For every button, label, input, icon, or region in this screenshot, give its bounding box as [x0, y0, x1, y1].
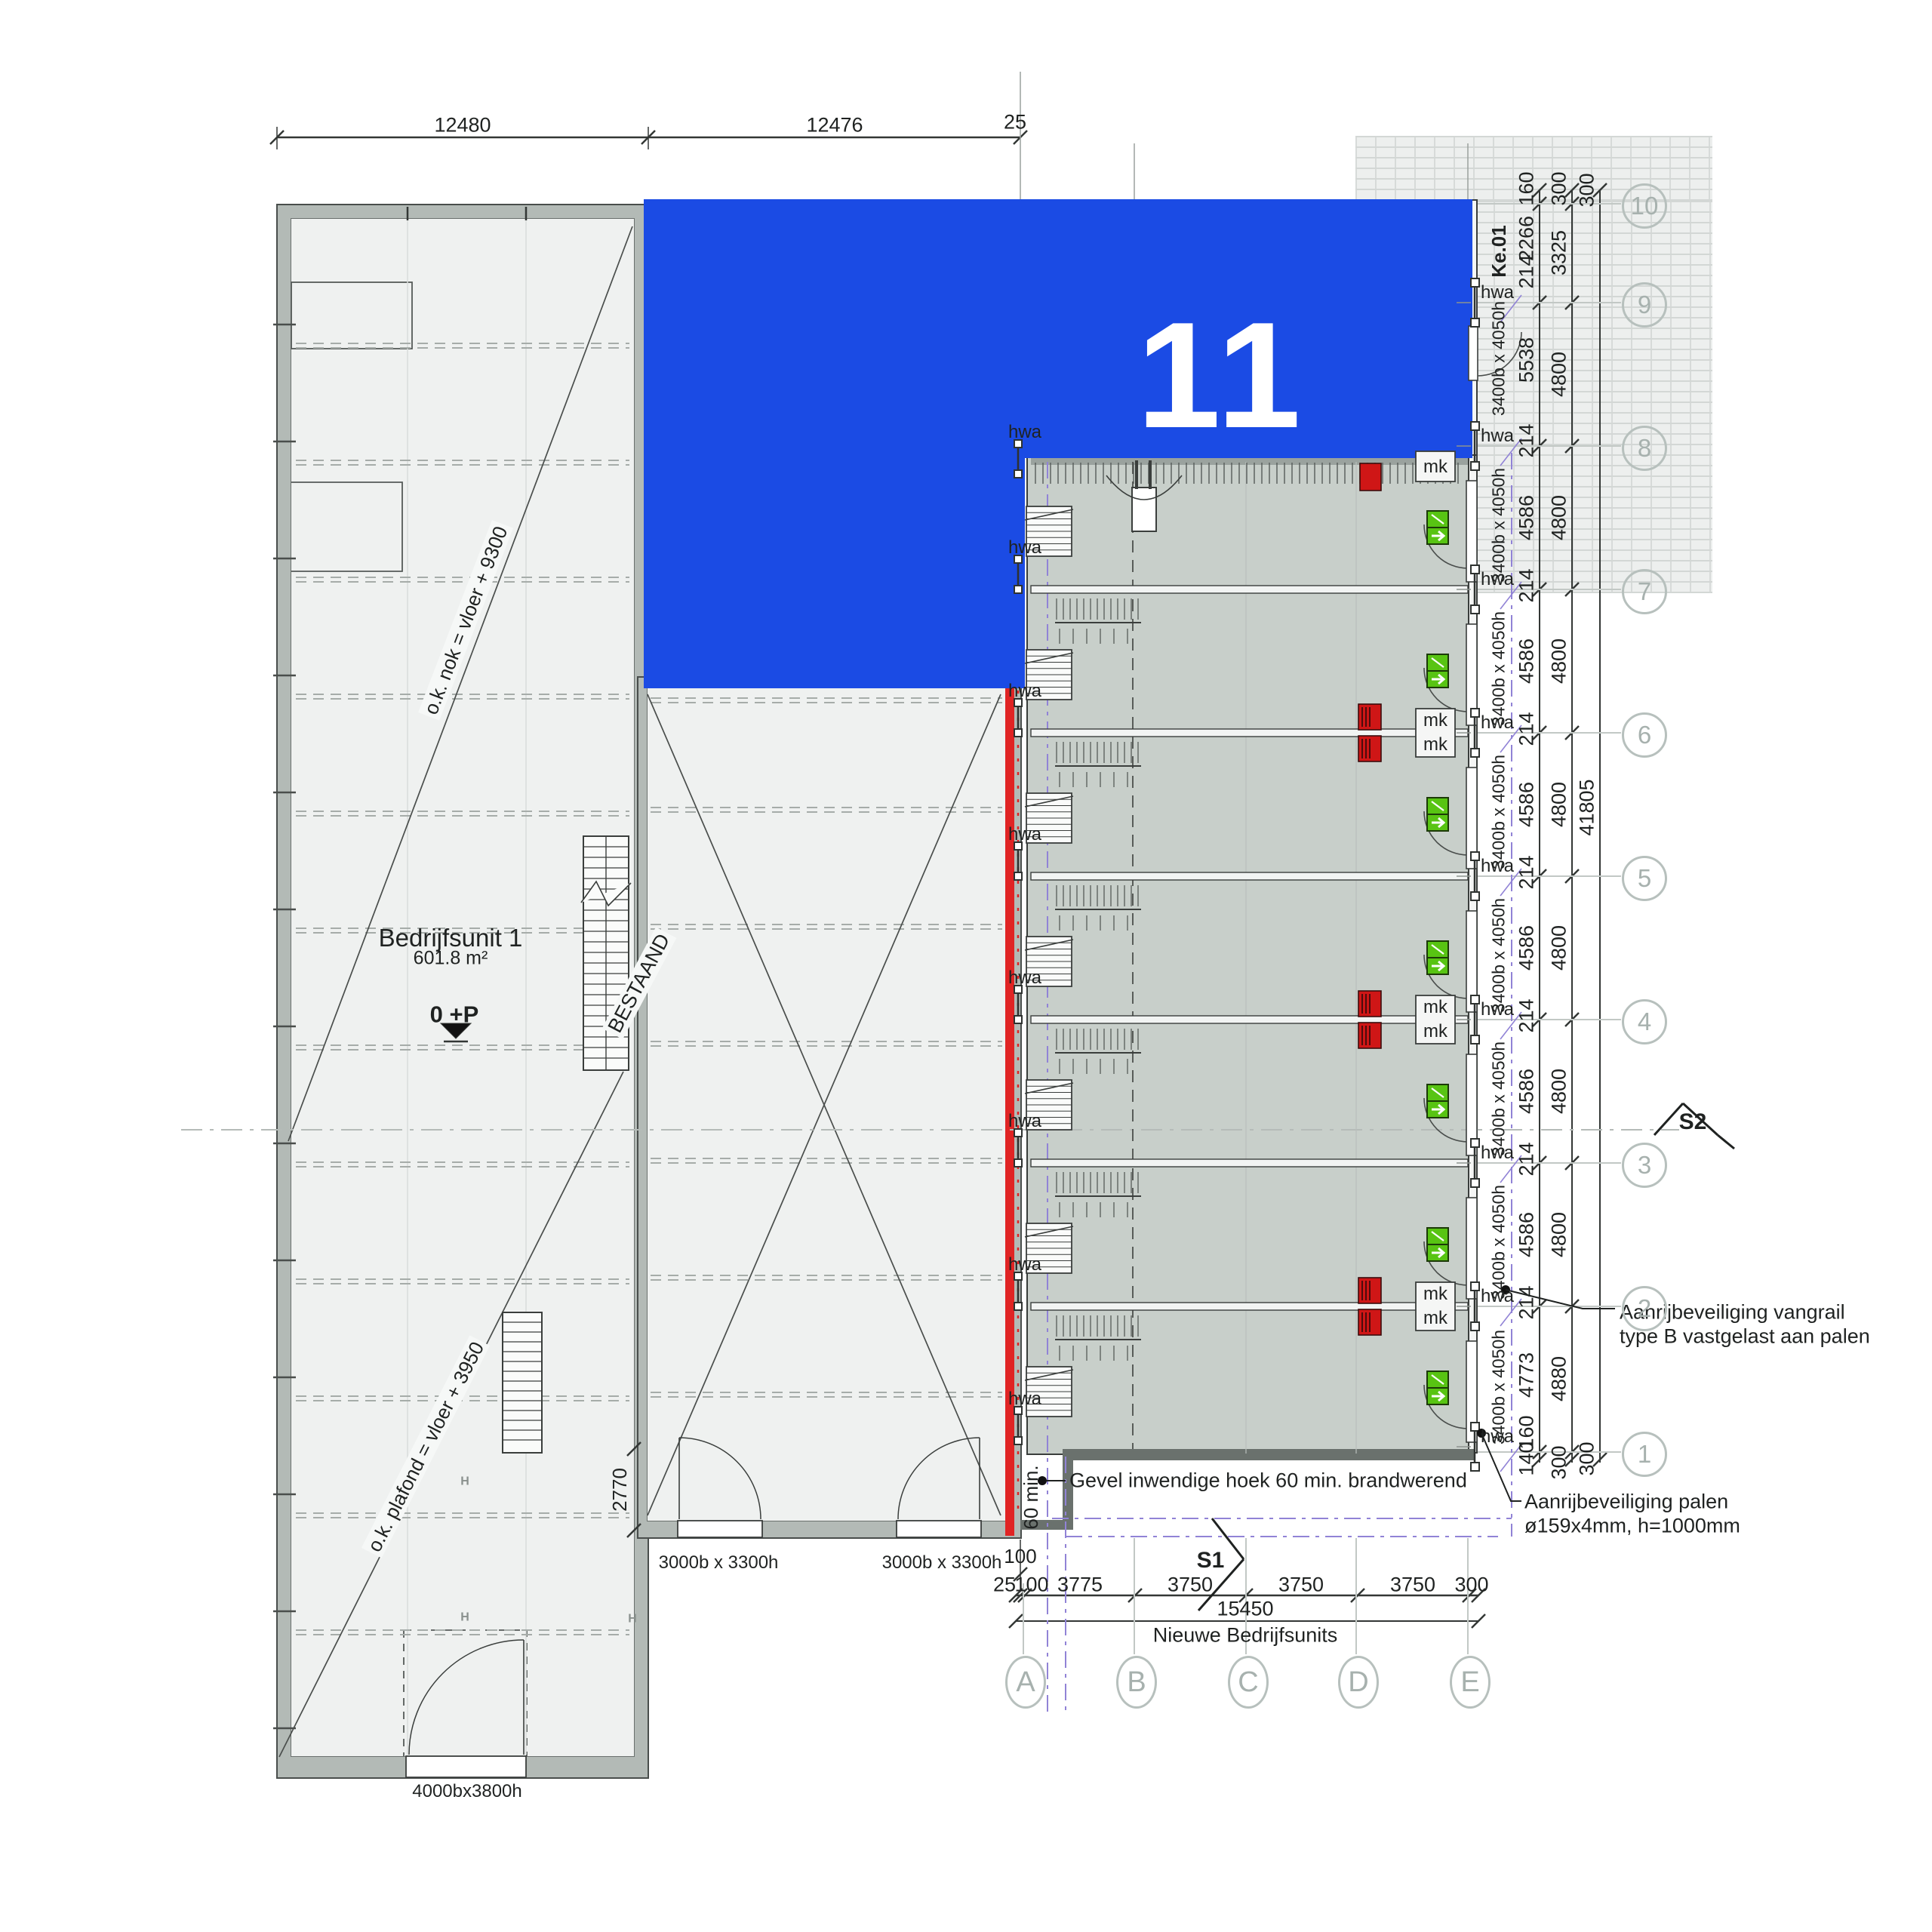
dim-label: 3750 — [1390, 1574, 1435, 1595]
grid-col-bubble-D: D — [1338, 1656, 1379, 1709]
unit-door-label: 3400b x 4050h — [1490, 898, 1509, 1013]
mk-label: mk — [1423, 1022, 1447, 1041]
grid-col-bubble-C: C — [1228, 1656, 1269, 1709]
mk-label: mk — [1423, 711, 1447, 731]
rect — [1471, 462, 1479, 470]
dim-label: 41805 — [1576, 779, 1598, 835]
grid-col-bubble-E: E — [1450, 1656, 1491, 1709]
hwa-label-right: hwa — [1481, 426, 1514, 446]
dim-label: 4586 — [1515, 495, 1537, 540]
dim-label: 4586 — [1515, 782, 1537, 827]
s2-marker-label: S2 — [1679, 1110, 1707, 1134]
unit-door-label: 3400b x 4050h — [1490, 1041, 1509, 1156]
grid-row-bubble-2: 2 — [1622, 1286, 1667, 1331]
dim-label: 214 — [1515, 423, 1537, 457]
hwa-label-left: hwa — [1008, 968, 1041, 988]
dim-label: 12480 — [434, 114, 491, 136]
dim-label: 4586 — [1515, 1069, 1537, 1114]
rect — [1471, 892, 1479, 900]
s1-marker-label: S1 — [1197, 1549, 1225, 1573]
mk-label: mk — [1423, 735, 1447, 755]
grid-row-bubble-4: 4 — [1622, 999, 1667, 1044]
grid-row-bubble-9: 9 — [1622, 282, 1667, 328]
mk-label: mk — [1423, 1284, 1447, 1304]
hwa-label-left: hwa — [1008, 825, 1041, 844]
annotation-posts-2: ø159x4mm, h=1000mm — [1524, 1515, 1740, 1537]
dim-100-upper: 100 — [1004, 1546, 1036, 1567]
rect — [1471, 318, 1479, 327]
line — [1718, 1135, 1734, 1149]
rect — [1014, 586, 1022, 593]
rect — [1014, 1303, 1022, 1310]
dim-2770: 2770 — [609, 1468, 630, 1512]
dim-label: 25 — [1004, 111, 1026, 133]
hwa-label-left: hwa — [1008, 423, 1041, 442]
dim-label: 100 — [1014, 1574, 1048, 1595]
door-label-4000: 4000bx3800h — [412, 1782, 521, 1801]
min60-label: 60 min. — [1020, 1465, 1041, 1529]
unit-door-label: 3400b x 4050h — [1490, 755, 1509, 869]
rect — [1360, 463, 1381, 491]
dim-label: 214 — [1515, 1285, 1537, 1319]
rect — [1471, 1322, 1479, 1331]
total-dim-15450: 15450 — [1217, 1598, 1273, 1620]
rect — [1471, 852, 1479, 860]
dim-label: 3775 — [1057, 1574, 1103, 1595]
level-marker-label: 0 +P — [430, 1001, 479, 1026]
rect — [1469, 326, 1478, 380]
rect — [1132, 488, 1156, 531]
dim-label: 3325 — [1548, 230, 1570, 275]
dim-label: 214 — [1515, 712, 1537, 746]
unit-door-label: 3400b x 4050h — [1490, 301, 1509, 416]
door-label-3000-a: 3000b x 3300h — [659, 1553, 779, 1573]
unit-door-label: 3400b x 4050h — [1490, 1330, 1509, 1444]
grid-row-bubble-5: 5 — [1622, 856, 1667, 901]
rect — [1471, 1035, 1479, 1044]
column-mark: H — [460, 1475, 469, 1487]
grid-row-bubble-10: 10 — [1622, 183, 1667, 229]
hwa-label-left: hwa — [1008, 1255, 1041, 1275]
dim-label: 4880 — [1548, 1356, 1570, 1401]
rect — [1471, 422, 1479, 430]
dim-label: 4800 — [1548, 495, 1570, 540]
dim-label: 300 — [1576, 173, 1598, 207]
rect — [1014, 1159, 1022, 1167]
dim-label: 4800 — [1548, 1069, 1570, 1114]
rect — [1014, 729, 1022, 737]
dim-label: 4800 — [1548, 352, 1570, 397]
rect — [1471, 605, 1479, 614]
dim-label: 4586 — [1515, 925, 1537, 971]
mk-label: mk — [1423, 457, 1447, 477]
rect — [1014, 470, 1022, 478]
unit-door-label: 3400b x 4050h — [1490, 611, 1509, 726]
rect — [1471, 1463, 1479, 1471]
floor-plan-page: 11 Bedrijfsunit 1 601.8 m² 0 +P BESTAAND… — [0, 0, 1932, 1932]
dim-label: 4800 — [1548, 638, 1570, 684]
grid-row-bubble-1: 1 — [1622, 1432, 1667, 1477]
rect — [1471, 1139, 1479, 1147]
grid-row-bubble-6: 6 — [1622, 712, 1667, 758]
rect — [1471, 1179, 1479, 1187]
rect — [1014, 1437, 1022, 1444]
dim-label: 160 — [1515, 171, 1537, 205]
dim-label: 4586 — [1515, 1212, 1537, 1257]
caption-new-units: Nieuwe Bedrijfsunits — [1153, 1624, 1338, 1646]
rect — [1471, 709, 1479, 717]
dim-label: 140 — [1515, 1441, 1537, 1475]
dim-label: 214 — [1515, 998, 1537, 1032]
dim-label: 5538 — [1515, 337, 1537, 383]
hwa-label-right: hwa — [1481, 283, 1514, 303]
rect — [1471, 1282, 1479, 1291]
annotation-guardrail-2: type B vastgelast aan palen — [1620, 1325, 1870, 1347]
dim-label: 3750 — [1278, 1574, 1324, 1595]
ke01-label: Ke.01 — [1488, 225, 1509, 277]
unit-door-label: 3400b x 4050h — [1490, 1185, 1509, 1300]
dim-label: 4800 — [1548, 925, 1570, 971]
grid-row-bubble-3: 3 — [1622, 1143, 1667, 1188]
rect — [1471, 278, 1479, 287]
rect — [1471, 1423, 1479, 1431]
annotation-posts-1: Aanrijbeveiliging palen — [1524, 1491, 1728, 1512]
unit-door-label: 3400b x 4050h — [1490, 468, 1509, 583]
dim-label: 214 — [1515, 254, 1537, 288]
hwa-label-left: hwa — [1008, 681, 1041, 701]
hwa-label-left: hwa — [1008, 1389, 1041, 1409]
dim-label: 4800 — [1548, 782, 1570, 827]
grid-row-bubble-7: 7 — [1622, 569, 1667, 614]
dim-label: 300 — [1548, 171, 1570, 205]
dim-label: 300 — [1576, 1441, 1598, 1475]
dim-label: 214 — [1515, 1142, 1537, 1176]
dim-label: 4586 — [1515, 638, 1537, 684]
rect — [1014, 872, 1022, 880]
annotation-fire-wall: Gevel inwendige hoek 60 min. brandwerend — [1069, 1469, 1467, 1491]
rect — [1014, 1016, 1022, 1023]
dim-label: 4800 — [1548, 1212, 1570, 1257]
dim-label: 3750 — [1168, 1574, 1213, 1595]
dim-label: 25 — [993, 1574, 1016, 1595]
column-mark: H — [628, 1612, 637, 1625]
grid-col-bubble-B: B — [1116, 1656, 1157, 1709]
grid-row-bubble-8: 8 — [1622, 426, 1667, 471]
column-mark: H — [460, 1611, 469, 1623]
rect — [1471, 995, 1479, 1004]
dim-label: 300 — [1548, 1445, 1570, 1479]
dim-label: 300 — [1454, 1574, 1488, 1595]
rect — [1471, 565, 1479, 574]
dim-label: 4773 — [1515, 1352, 1537, 1398]
hwa-label-left: hwa — [1008, 1112, 1041, 1131]
rect — [1471, 749, 1479, 757]
unit-11-number: 11 — [1137, 294, 1305, 457]
grid-col-bubble-A: A — [1005, 1656, 1046, 1709]
dim-label: 214 — [1515, 568, 1537, 602]
hwa-label-left: hwa — [1008, 538, 1041, 558]
mk-label: mk — [1423, 1309, 1447, 1328]
dim-label: 12476 — [806, 114, 863, 136]
dim-label: 214 — [1515, 855, 1537, 889]
door-label-3000-b: 3000b x 3300h — [882, 1553, 1002, 1573]
mk-label: mk — [1423, 998, 1447, 1017]
hall-area: 601.8 m² — [414, 949, 488, 969]
